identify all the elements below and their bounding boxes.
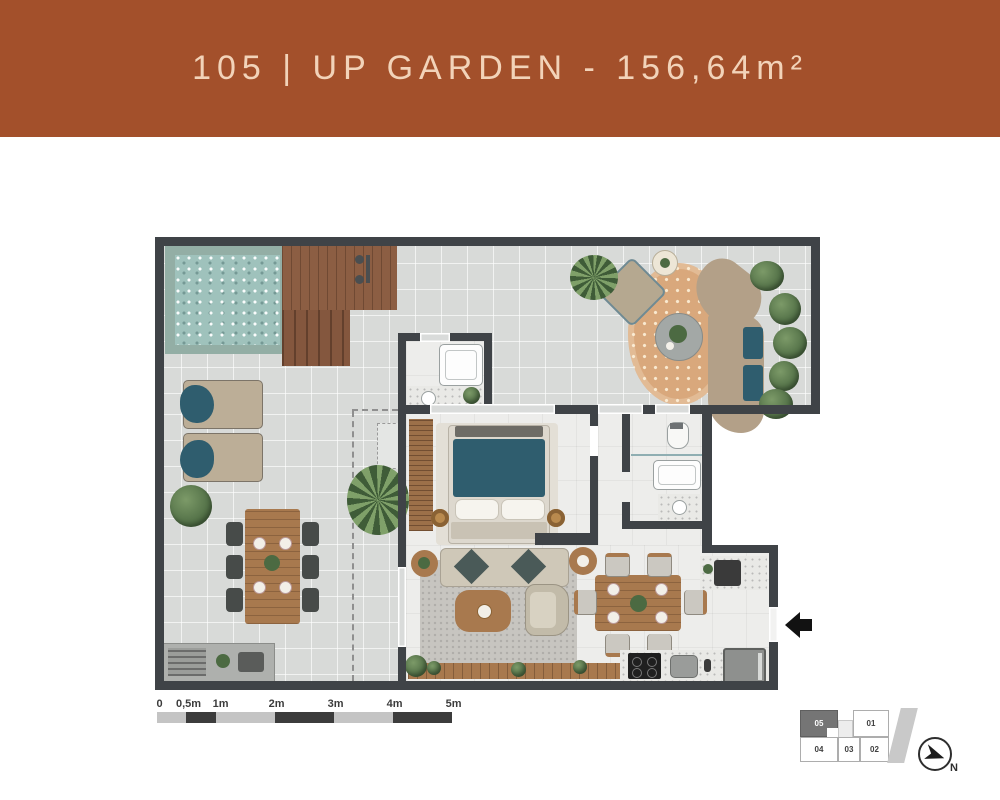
nightstand-lamp [547, 509, 565, 527]
outdoor-chair [302, 522, 319, 546]
palm-plant [570, 255, 618, 300]
dining-table [595, 575, 681, 631]
outdoor-shower-icon [353, 253, 379, 287]
key-plan-unit-02: 02 [860, 737, 889, 762]
dining-chair [684, 590, 707, 615]
pillow [455, 499, 499, 520]
kitchen-counter-top [700, 556, 767, 590]
key-plan-unit-01: 01 [853, 710, 889, 737]
wood-deck-lower [282, 310, 350, 366]
dining-chair [574, 590, 597, 615]
shrub [750, 261, 784, 291]
window [655, 404, 690, 414]
window [420, 333, 450, 342]
plant [703, 564, 713, 574]
kitchen-sink [670, 655, 698, 678]
projection-dashed-line [352, 411, 354, 681]
shower-glass-divider [631, 454, 702, 456]
key-plan-unit-label: 04 [815, 745, 824, 754]
key-plan-unit-05: 05 [800, 710, 838, 737]
scale-segment [393, 712, 452, 723]
title-banner: 105 | UP GARDEN - 156,64m² [0, 0, 1000, 137]
scale-label: 0,5m [176, 698, 201, 710]
page-title: 105 | UP GARDEN - 156,64m² [192, 49, 808, 88]
scale-label: 0 [157, 698, 163, 710]
projection-dashed-line [352, 409, 398, 411]
wall [590, 412, 598, 426]
scale-label: 1m [213, 698, 229, 710]
plant [405, 655, 427, 677]
north-arrow-icon [918, 737, 952, 771]
outdoor-chair [302, 555, 319, 579]
key-plan-unit-label: 05 [815, 719, 824, 728]
scale-label: 4m [387, 698, 403, 710]
scale-segment [275, 712, 334, 723]
sink [672, 500, 687, 515]
bed [448, 425, 550, 544]
dining-chair [647, 553, 672, 577]
faucet-icon [704, 659, 711, 672]
wall [398, 333, 406, 567]
scale-segment [157, 712, 186, 723]
outdoor-chair [302, 588, 319, 612]
duvet [453, 439, 545, 497]
scale-label: 3m [328, 698, 344, 710]
shrub [773, 327, 807, 359]
side-table [569, 547, 597, 575]
sliding-glass-door [398, 567, 406, 647]
plant [427, 661, 441, 675]
wall [535, 533, 598, 545]
page: 105 | UP GARDEN - 156,64m² [0, 0, 1000, 800]
sofa-cushion [743, 327, 763, 359]
wall [590, 456, 598, 545]
toilet [667, 422, 689, 449]
wall [811, 237, 820, 414]
sofa-cushion [743, 365, 763, 401]
wall [622, 412, 630, 472]
glass-door [598, 404, 643, 414]
outdoor-sink [238, 652, 264, 672]
wardrobe [409, 419, 433, 531]
plant [669, 325, 687, 343]
wall [622, 521, 712, 529]
plant [511, 662, 526, 677]
nightstand-lamp [431, 509, 449, 527]
scale-label: 2m [269, 698, 285, 710]
key-plan: 05 01 04 03 02 [798, 704, 918, 768]
shrub [769, 293, 801, 325]
wall [702, 414, 712, 553]
outdoor-coffee-table [655, 313, 703, 361]
plant [573, 660, 587, 674]
scale-segment [216, 712, 275, 723]
throw-pillow [511, 549, 546, 584]
scale-segment [186, 712, 216, 723]
key-plan-unit-label: 02 [870, 745, 879, 754]
wall [155, 237, 164, 690]
sun-lounger [183, 380, 263, 429]
grill-icon [168, 648, 206, 676]
key-plan-unit-label: 03 [845, 745, 854, 754]
coffee-table [455, 590, 511, 632]
wall [702, 545, 778, 553]
wall [769, 642, 778, 690]
wall [398, 647, 406, 681]
bbq-counter [163, 643, 275, 683]
kitchen-sink [714, 560, 741, 586]
side-table [411, 550, 438, 577]
sofa [440, 548, 569, 587]
outdoor-chair [226, 555, 243, 579]
shrub [769, 361, 799, 391]
plant [463, 387, 480, 404]
scale-bar: 0 0,5m 1m 2m 3m 4m 5m [157, 698, 457, 728]
outdoor-dining-table [245, 509, 300, 624]
wall [769, 545, 778, 607]
key-plan-ramp [887, 708, 918, 763]
outdoor-chair [226, 522, 243, 546]
plant [630, 595, 647, 612]
side-table [652, 250, 678, 276]
plant [216, 654, 230, 668]
armchair [525, 584, 569, 636]
wall [155, 237, 820, 246]
bathroom2-vanity [658, 494, 702, 520]
sun-lounger [183, 433, 263, 482]
north-label: N [950, 762, 958, 774]
floor-plan [155, 237, 820, 690]
bathtub [439, 344, 483, 386]
scale-label: 5m [446, 698, 462, 710]
plant [170, 485, 212, 527]
key-plan-unit-label: 01 [867, 719, 876, 728]
outdoor-chair [226, 588, 243, 612]
pillow [501, 499, 545, 520]
pool [165, 246, 290, 354]
bed-bench [455, 426, 543, 437]
pool-water [175, 255, 280, 345]
shrub [759, 389, 793, 419]
wall [484, 333, 492, 412]
scale-segment [334, 712, 393, 723]
key-plan-unit-03: 03 [838, 737, 860, 762]
sliding-glass-door [430, 404, 555, 414]
wood-deck-upper [282, 246, 397, 310]
bathtub [653, 460, 701, 490]
cooktop-icon [628, 653, 661, 679]
entry-arrow-icon [785, 612, 813, 638]
key-plan-unit-04: 04 [800, 737, 838, 762]
wall [155, 681, 778, 690]
dining-chair [605, 553, 630, 577]
headboard [451, 522, 547, 539]
entry-door [769, 607, 778, 642]
throw-pillow [454, 549, 489, 584]
